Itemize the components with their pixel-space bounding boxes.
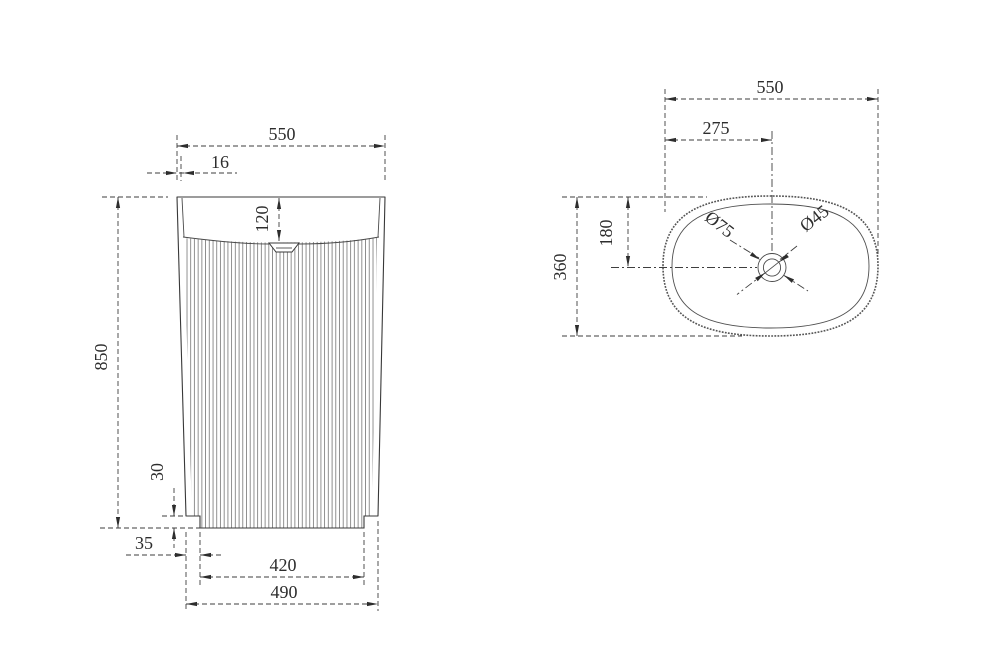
- dim-label: 120: [252, 206, 272, 233]
- dim-label: 275: [703, 118, 730, 138]
- basin-outer-rim: [663, 196, 878, 336]
- dim-front-basin-depth: 120: [252, 198, 281, 241]
- dim-front-overall-width: 550: [177, 124, 385, 182]
- dim-label: 490: [271, 582, 298, 602]
- dim-label: 550: [757, 77, 784, 97]
- dim-label: Ø75: [701, 207, 738, 242]
- dim-top-waste-inner-diameter: Ø45: [737, 201, 833, 295]
- technical-drawing: 550 16 120 850: [0, 0, 1000, 666]
- dim-label: 360: [550, 254, 570, 281]
- dim-front-base-inner-width: 420: [200, 532, 364, 585]
- rim-inner-walls: [182, 198, 380, 237]
- drawing-canvas: 550 16 120 850: [0, 0, 1000, 666]
- extension-line: [665, 89, 878, 256]
- dim-top-drain-center-x: 275: [665, 118, 772, 142]
- dim-label: 35: [135, 533, 153, 553]
- dim-top-overall-width: 550: [665, 77, 878, 256]
- dim-label: 850: [91, 344, 111, 371]
- dim-label: 550: [269, 124, 296, 144]
- top-view: 550 275 360 180: [550, 77, 878, 336]
- dim-label: Ø45: [796, 201, 833, 236]
- dim-label: 180: [596, 220, 616, 247]
- dim-front-rim-thickness: 16: [147, 152, 237, 181]
- dim-front-base-recess-height: 30: [147, 463, 187, 548]
- leader-line: [780, 246, 797, 260]
- dim-label: 16: [211, 152, 229, 172]
- fluted-surface: [184, 238, 377, 528]
- drain-center-slash: [764, 261, 780, 274]
- front-view: 550 16 120 850: [91, 124, 385, 611]
- dim-top-waste-outer-diameter: Ø75: [701, 207, 808, 291]
- dim-label: 30: [147, 463, 167, 481]
- dim-top-drain-center-y: 180: [596, 197, 630, 267]
- dim-label: 420: [270, 555, 297, 575]
